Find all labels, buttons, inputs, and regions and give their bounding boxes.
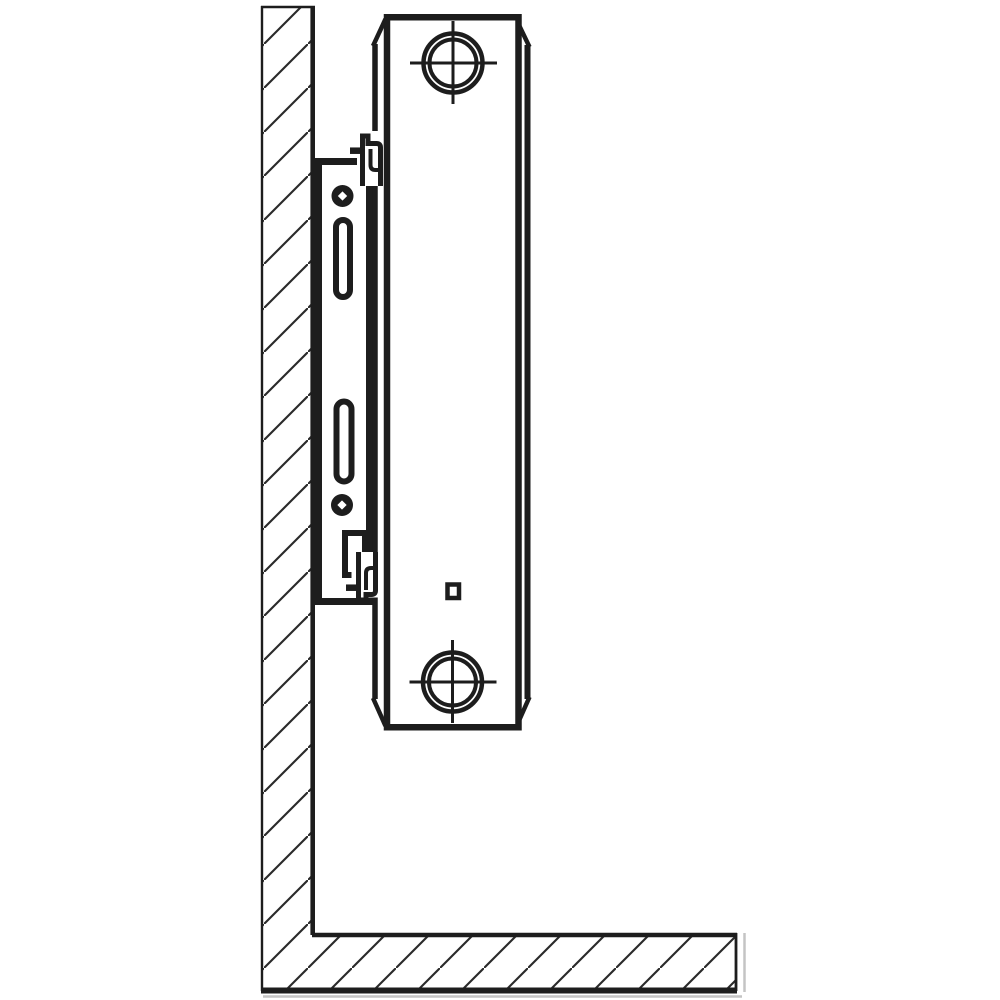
bracket-slot-top <box>336 220 350 297</box>
bracket-hole-top <box>332 185 354 207</box>
rear-bottom-chamfer <box>373 698 386 726</box>
diagram-canvas <box>0 0 1000 1000</box>
mounting-bracket <box>319 162 370 602</box>
panel-body <box>387 17 519 727</box>
radiator-panel <box>387 17 519 727</box>
radiator-installation-diagram <box>0 0 1000 1000</box>
bracket-hole-bottom <box>331 494 353 516</box>
bracket-hook-bottom <box>346 552 383 600</box>
rear-top-chamfer <box>373 19 386 46</box>
panel-detail-square <box>448 585 460 599</box>
bracket-slot-bottom <box>337 402 352 482</box>
